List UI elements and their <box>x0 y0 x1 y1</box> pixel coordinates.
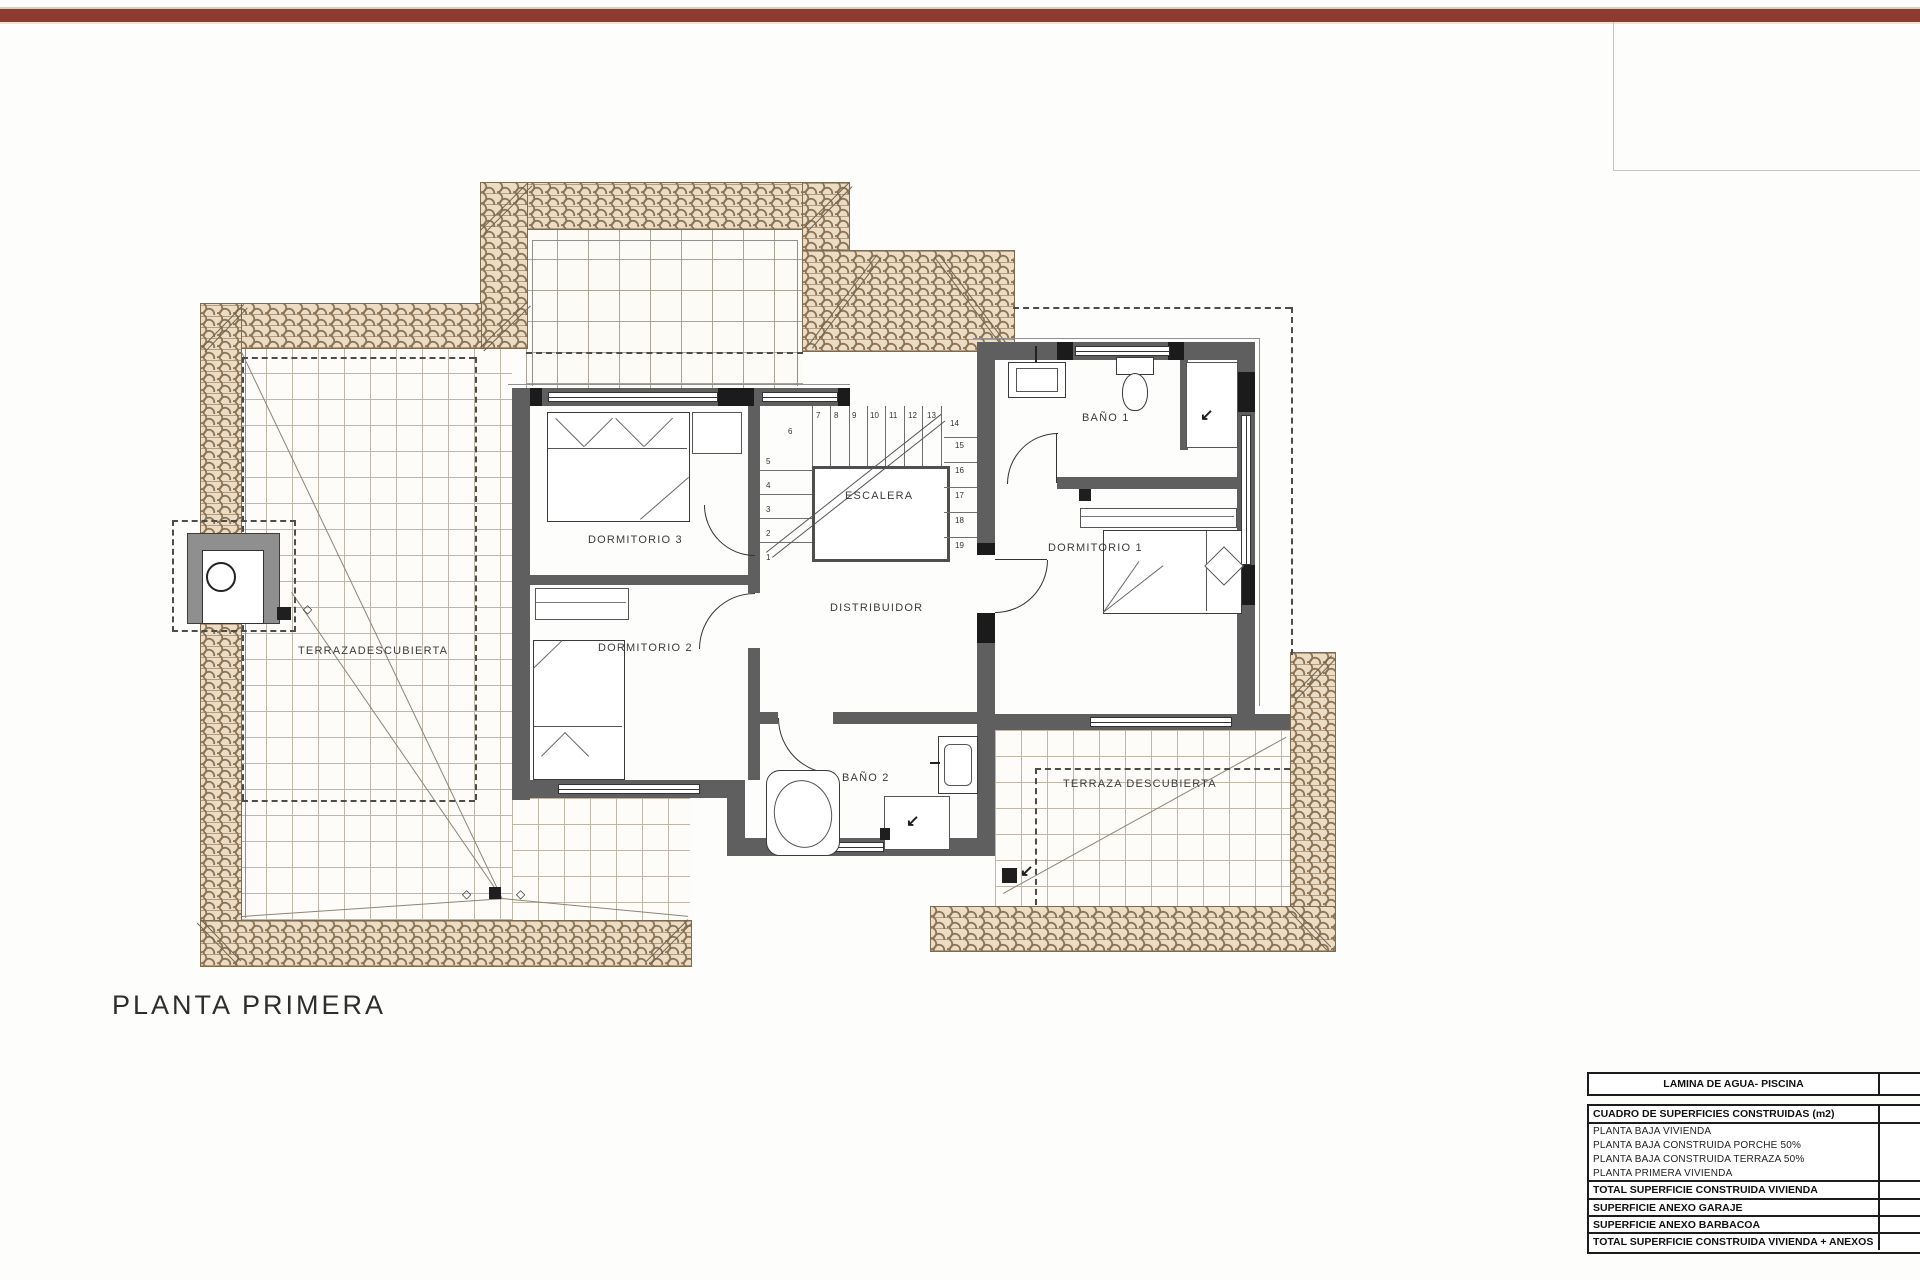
lamina-value <box>1878 1074 1920 1094</box>
stair-number: 10 <box>870 412 879 420</box>
room-label-bano1: BAÑO 1 <box>1082 412 1130 424</box>
bed-line <box>534 726 622 727</box>
drain-icon <box>880 828 890 840</box>
wall-d2-distribuidor-lower <box>748 648 760 780</box>
door-leaf <box>1056 433 1057 483</box>
drain-icon <box>277 607 291 620</box>
table-row: PLANTA BAJA CONSTRUIDA TERRAZA 50% <box>1589 1152 1920 1166</box>
stair-tread <box>760 542 812 543</box>
dashed-overhang-line <box>1291 307 1293 655</box>
stair-tread <box>944 437 977 438</box>
stair-tread <box>944 462 977 463</box>
dashed-setback-rect <box>242 800 475 802</box>
roof-tile-band-terrace-bottom <box>200 920 692 967</box>
vent-diamond-icon: ◇ <box>462 888 471 900</box>
drain-icon <box>1002 868 1017 883</box>
wall-left-main <box>512 388 530 800</box>
stair-number: 7 <box>816 412 820 420</box>
closet-dormitorio1 <box>1080 508 1237 528</box>
stair-tread <box>812 406 813 466</box>
stair-number: 15 <box>955 442 964 450</box>
stair-tread <box>944 487 977 488</box>
roof-edge-line <box>973 338 1259 339</box>
table-row: CUADRO DE SUPERFICIES CONSTRUIDAS (m2) <box>1589 1106 1920 1124</box>
shower-arrow-icon: ↙ <box>1200 408 1213 424</box>
closet-line <box>536 602 626 603</box>
table-row: SUPERFICIE ANEXO GARAJE <box>1589 1198 1920 1215</box>
top-roof-block-grid <box>526 228 803 388</box>
stair-tread <box>941 406 942 466</box>
wall-jamb <box>718 388 754 406</box>
room-label-dormitorio1: DORMITORIO 1 <box>1048 542 1143 554</box>
stair-number: 9 <box>852 412 856 420</box>
dashed-setback-rect <box>242 357 475 359</box>
door-arc-bano1 <box>1007 433 1058 484</box>
row-label: TOTAL SUPERFICIE CONSTRUIDA VIVIENDA + A… <box>1589 1234 1878 1250</box>
roof-tile-band-topblock-top <box>480 182 850 230</box>
wall-jamb <box>1168 342 1184 360</box>
roof-edge-line <box>532 240 533 386</box>
surfaces-table: CUADRO DE SUPERFICIES CONSTRUIDAS (m2) P… <box>1587 1104 1920 1254</box>
wall-wing-left-upper <box>977 342 995 555</box>
window-bano1 <box>1075 346 1170 356</box>
dashed-overhang-line <box>526 352 803 354</box>
roof-edge-line <box>1259 338 1260 706</box>
stair-number: 3 <box>766 506 770 514</box>
stair-tread <box>867 406 868 466</box>
window-dormitorio1-east <box>1241 415 1251 565</box>
row-label: SUPERFICIE ANEXO BARBACOA <box>1589 1217 1878 1232</box>
stair-number: 5 <box>766 458 770 466</box>
wall-bano1-dorm1 <box>1057 477 1237 489</box>
stair-number: 13 <box>927 412 936 420</box>
stair-number: 11 <box>889 412 897 420</box>
wall-jamb <box>977 543 995 555</box>
row-value <box>1878 1166 1920 1180</box>
roof-edge-line <box>797 240 798 386</box>
shower-bano1 <box>1186 362 1238 448</box>
window-stairs <box>762 392 838 402</box>
chimney-flue-circle <box>206 562 236 592</box>
window-dormitorio3 <box>548 392 718 402</box>
closet-line <box>1081 516 1234 517</box>
stair-tread <box>904 406 905 466</box>
surfaces-header: CUADRO DE SUPERFICIES CONSTRUIDAS (m2) <box>1589 1106 1878 1122</box>
stair-number: 12 <box>908 412 917 420</box>
room-label-terraza-derecha: TERRAZA DESCUBIERTA <box>1063 778 1217 790</box>
nightstand-dormitorio3 <box>692 412 742 454</box>
stair-number: 16 <box>955 467 964 475</box>
roof-edge-line <box>508 384 850 385</box>
stair-number: 6 <box>788 428 792 436</box>
room-label-dormitorio3: DORMITORIO 3 <box>588 534 683 546</box>
stair-tread <box>830 406 831 466</box>
drain-icon <box>489 887 501 899</box>
row-label: TOTAL SUPERFICIE CONSTRUIDA VIVIENDA <box>1589 1182 1878 1198</box>
stair-tread <box>944 512 977 513</box>
door-leaf <box>995 559 1047 560</box>
right-terrace-grid <box>995 730 1290 906</box>
table-row: PLANTA BAJA VIVIENDA <box>1589 1124 1920 1138</box>
page-title: PLANTA PRIMERA <box>112 990 386 1021</box>
room-label-escalera: ESCALERA <box>845 490 913 502</box>
roof-tile-band-right-terrace-bottom <box>930 906 1336 952</box>
wall-d2-distribuidor-upper <box>748 555 760 593</box>
room-label-bano2: BAÑO 2 <box>842 772 890 784</box>
row-value <box>1878 1182 1920 1198</box>
lamina-label: LAMINA DE AGUA- PISCINA <box>1589 1074 1878 1094</box>
lamina-table: LAMINA DE AGUA- PISCINA <box>1587 1072 1920 1096</box>
row-value <box>1878 1200 1920 1215</box>
wall-jamb <box>977 613 995 643</box>
stair-landing <box>812 466 950 562</box>
shower-arrow-icon: ↙ <box>906 814 919 830</box>
table-row: SUPERFICIE ANEXO BARBACOA <box>1589 1215 1920 1232</box>
wall-bano2-top-a <box>760 712 778 724</box>
table-row: PLANTA BAJA CONSTRUIDA PORCHE 50% <box>1589 1138 1920 1152</box>
stair-number: 17 <box>955 492 964 500</box>
stair-number: 18 <box>955 517 964 525</box>
window-dormitorio1 <box>1090 717 1232 727</box>
door-arc-dormitorio3 <box>704 505 755 556</box>
vent-diamond-icon: ◇ <box>303 603 312 615</box>
dashed-setback-right-terrace <box>1035 768 1290 770</box>
tap-icon <box>930 762 940 764</box>
door-arc-dormitorio2 <box>699 593 755 649</box>
room-label-dormitorio2: DORMITORIO 2 <box>598 642 693 654</box>
closet-dormitorio2 <box>535 588 629 620</box>
surfaces-header-value <box>1878 1106 1920 1122</box>
drawing-sheet: 6 7 8 9 10 11 12 13 14 15 16 17 18 19 5 … <box>0 0 1920 1280</box>
wall-bano2-top-b <box>833 712 977 724</box>
wall-d3-d2 <box>530 575 748 585</box>
stair-number: 19 <box>955 542 964 550</box>
tap-icon <box>1035 346 1037 362</box>
row-label: PLANTA BAJA VIVIENDA <box>1589 1124 1878 1138</box>
toilet-bowl-bano1 <box>1122 373 1148 411</box>
bed-dormitorio3 <box>547 412 690 522</box>
roof-tile-band-wing <box>802 250 1015 352</box>
stair-tread <box>944 537 977 538</box>
shower-arrow-icon: ↙ <box>1020 864 1033 880</box>
bed-line <box>1206 531 1207 611</box>
wall-jamb <box>1057 342 1073 360</box>
dashed-setback-right-terrace <box>1035 768 1037 905</box>
door-arc-dormitorio1 <box>995 560 1048 613</box>
stair-tread <box>760 494 812 495</box>
stair-number: 14 <box>950 420 959 428</box>
row-label: PLANTA BAJA CONSTRUIDA PORCHE 50% <box>1589 1138 1878 1152</box>
dashed-overhang-line <box>1013 307 1291 309</box>
door-arc-bano2 <box>778 718 834 774</box>
row-value <box>1878 1138 1920 1152</box>
stair-tread <box>760 470 812 471</box>
table-row: TOTAL SUPERFICIE CONSTRUIDA VIVIENDA <box>1589 1180 1920 1198</box>
roof-edge-line <box>245 349 246 918</box>
row-value <box>1878 1124 1920 1138</box>
sink-basin-bano1 <box>1016 368 1058 392</box>
wall-jamb <box>1237 372 1255 412</box>
row-value <box>1878 1234 1920 1250</box>
wall-pier <box>1079 489 1091 501</box>
dashed-setback-rect <box>475 357 477 800</box>
stair-tread <box>922 406 923 466</box>
roof-tile-band-terrace-left <box>200 303 242 967</box>
room-label-terraza-izquierda: TERRAZADESCUBIERTA <box>298 645 448 657</box>
bed-dormitorio2 <box>533 640 625 780</box>
wall-jamb <box>838 388 850 406</box>
row-label: PLANTA PRIMERA VIVIENDA <box>1589 1166 1878 1180</box>
table-row: PLANTA PRIMERA VIVIENDA <box>1589 1166 1920 1180</box>
stair-tread <box>760 518 812 519</box>
row-value <box>1878 1152 1920 1166</box>
stair-number: 4 <box>766 482 770 490</box>
row-label: PLANTA BAJA CONSTRUIDA TERRAZA 50% <box>1589 1152 1878 1166</box>
stair-number: 2 <box>766 530 770 538</box>
vent-diamond-icon: ◇ <box>516 888 525 900</box>
sink-basin-bano2 <box>944 744 972 786</box>
row-value <box>1878 1217 1920 1232</box>
row-label: SUPERFICIE ANEXO GARAJE <box>1589 1200 1878 1215</box>
stair-number: 8 <box>834 412 838 420</box>
roof-edge-line <box>532 240 797 241</box>
stair-tread <box>849 406 850 466</box>
table-row: TOTAL SUPERFICIE CONSTRUIDA VIVIENDA + A… <box>1589 1232 1920 1250</box>
bed-line <box>548 448 687 449</box>
window-dormitorio2 <box>558 784 700 794</box>
room-label-distribuidor: DISTRIBUIDOR <box>830 602 923 614</box>
stair-number: 1 <box>766 554 770 562</box>
